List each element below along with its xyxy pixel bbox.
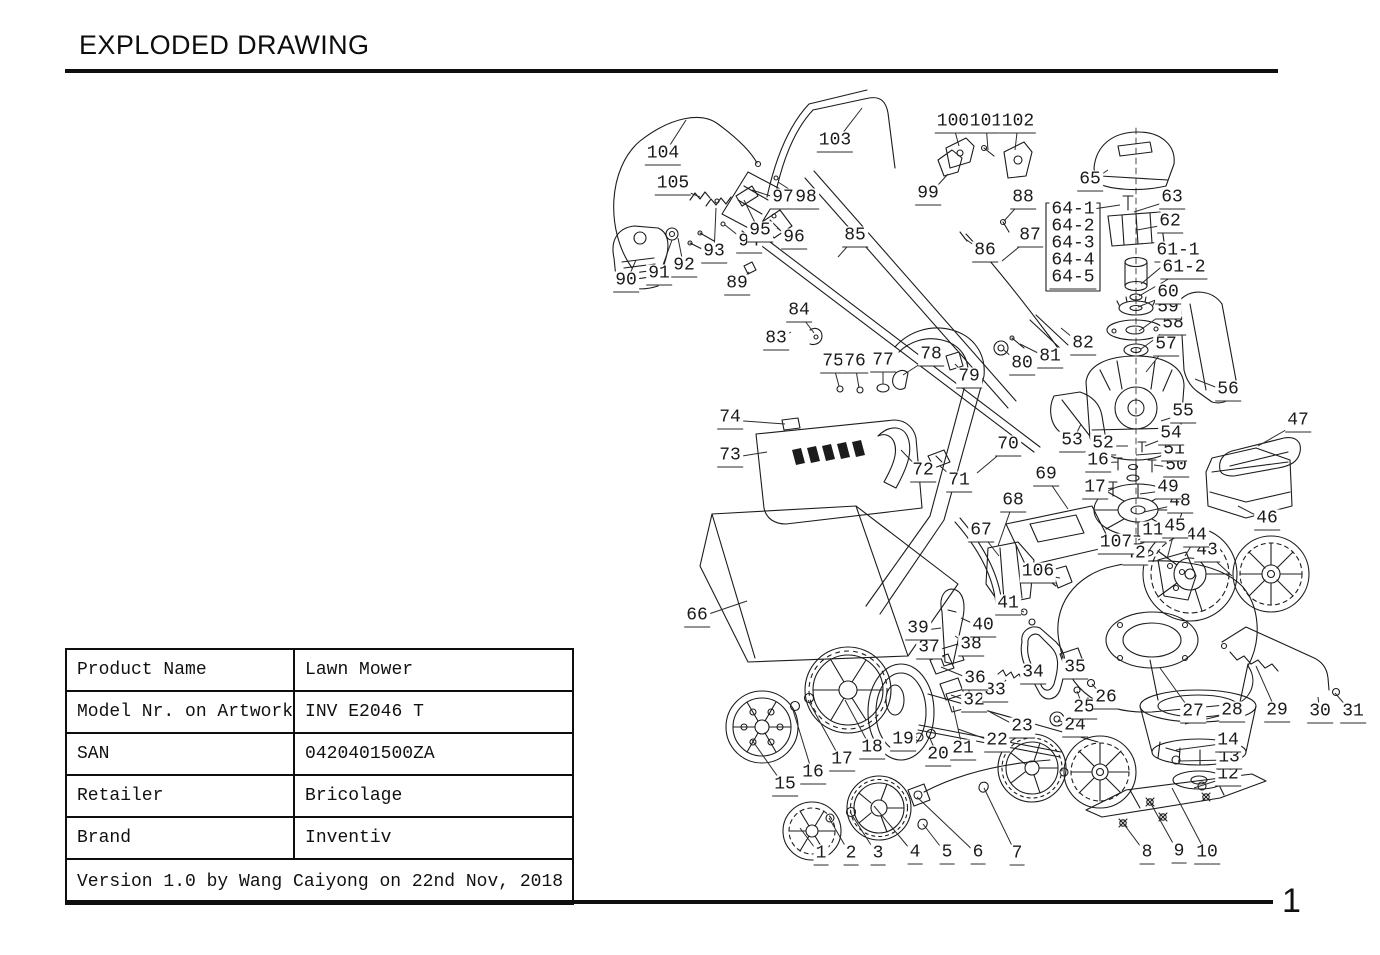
part-label-41: 41 bbox=[995, 595, 1021, 616]
part-label-103: 103 bbox=[817, 132, 853, 153]
part-label-80: 80 bbox=[1009, 355, 1035, 376]
part-label-95: 95 bbox=[747, 222, 773, 243]
part-label-21: 21 bbox=[950, 740, 976, 761]
part-label-2: 2 bbox=[844, 845, 859, 866]
part-label-102: 102 bbox=[1000, 113, 1036, 134]
part-label-74: 74 bbox=[717, 409, 743, 430]
part-label-9: 9 bbox=[1172, 843, 1187, 864]
part-label-17: 17 bbox=[1082, 479, 1108, 500]
part-label-55: 55 bbox=[1170, 403, 1196, 424]
part-label-107: 107 bbox=[1098, 534, 1134, 555]
part-label-5: 5 bbox=[940, 844, 955, 865]
part-label-36: 36 bbox=[962, 670, 988, 691]
part-label-65: 65 bbox=[1077, 171, 1103, 192]
part-label-81: 81 bbox=[1037, 348, 1063, 369]
part-label-20: 20 bbox=[925, 746, 951, 767]
part-label-53: 53 bbox=[1059, 432, 1085, 453]
part-label-66: 66 bbox=[684, 607, 710, 628]
part-label-23: 23 bbox=[1009, 718, 1035, 739]
part-label-99: 99 bbox=[915, 185, 941, 206]
part-label-77: 77 bbox=[870, 352, 896, 373]
part-label-63: 63 bbox=[1159, 189, 1185, 210]
part-label-69: 69 bbox=[1033, 466, 1059, 487]
part-label-98: 98 bbox=[793, 189, 819, 210]
part-label-56: 56 bbox=[1215, 381, 1241, 402]
part-label-39: 39 bbox=[905, 620, 931, 641]
part-label-4: 4 bbox=[908, 844, 923, 865]
part-label-89: 89 bbox=[724, 275, 750, 296]
part-label-73: 73 bbox=[717, 447, 743, 468]
part-labels-layer: 1234567891011121314151617181920212223242… bbox=[0, 0, 1380, 955]
part-label-1: 1 bbox=[814, 845, 829, 866]
part-label-100: 100 bbox=[935, 113, 971, 134]
part-label-85: 85 bbox=[842, 227, 868, 248]
part-label-61-2: 61-2 bbox=[1160, 259, 1207, 280]
part-label-24: 24 bbox=[1062, 717, 1088, 738]
part-label-72: 72 bbox=[910, 462, 936, 483]
part-label-83: 83 bbox=[763, 330, 789, 351]
part-label-68: 68 bbox=[1000, 492, 1026, 513]
part-label-37: 37 bbox=[916, 639, 942, 660]
part-label-78: 78 bbox=[918, 346, 944, 367]
part-label-40: 40 bbox=[970, 617, 996, 638]
part-label-6: 6 bbox=[971, 844, 986, 865]
part-label-93: 93 bbox=[701, 243, 727, 264]
part-label-30: 30 bbox=[1307, 703, 1333, 724]
part-label-45: 45 bbox=[1162, 518, 1188, 539]
part-label-88: 88 bbox=[1010, 189, 1036, 210]
part-label-54: 54 bbox=[1158, 425, 1184, 446]
part-label-104: 104 bbox=[645, 145, 681, 166]
part-label-71: 71 bbox=[946, 472, 972, 493]
part-label-17: 17 bbox=[829, 751, 855, 772]
document-page: EXPLODED DRAWING 1 bbox=[0, 0, 1380, 955]
part-label-8: 8 bbox=[1140, 844, 1155, 865]
part-label-62: 62 bbox=[1157, 213, 1183, 234]
part-label-10: 10 bbox=[1194, 844, 1220, 865]
part-label-70: 70 bbox=[995, 436, 1021, 457]
part-label-92: 92 bbox=[671, 257, 697, 278]
part-label-3: 3 bbox=[871, 845, 886, 866]
part-label-47: 47 bbox=[1285, 412, 1311, 433]
part-label-60: 60 bbox=[1155, 284, 1181, 305]
part-label-105: 105 bbox=[655, 175, 691, 196]
part-label-15: 15 bbox=[772, 776, 798, 797]
part-label-28: 28 bbox=[1219, 702, 1245, 723]
part-label-31: 31 bbox=[1340, 703, 1366, 724]
part-label-91: 91 bbox=[646, 265, 672, 286]
part-label-87: 87 bbox=[1017, 227, 1043, 248]
part-label-22: 22 bbox=[984, 732, 1010, 753]
part-label-7: 7 bbox=[1010, 845, 1025, 866]
part-label-86: 86 bbox=[972, 242, 998, 263]
part-label-46: 46 bbox=[1254, 510, 1280, 531]
part-label-26: 26 bbox=[1093, 689, 1119, 710]
part-label-64-5: 64-5 bbox=[1049, 269, 1096, 290]
part-label-57: 57 bbox=[1153, 336, 1179, 357]
part-label-29: 29 bbox=[1264, 702, 1290, 723]
part-label-16: 16 bbox=[800, 764, 826, 785]
part-label-16: 16 bbox=[1085, 452, 1111, 473]
part-label-90: 90 bbox=[613, 272, 639, 293]
part-label-101: 101 bbox=[968, 113, 1004, 134]
part-label-19: 19 bbox=[890, 731, 916, 752]
part-label-97: 97 bbox=[770, 189, 796, 210]
part-label-49: 49 bbox=[1155, 479, 1181, 500]
part-label-38: 38 bbox=[958, 636, 984, 657]
part-label-18: 18 bbox=[859, 739, 885, 760]
part-label-106: 106 bbox=[1020, 563, 1056, 584]
part-label-82: 82 bbox=[1070, 335, 1096, 356]
part-label-27: 27 bbox=[1180, 703, 1206, 724]
part-label-84: 84 bbox=[786, 302, 812, 323]
part-label-76: 76 bbox=[842, 353, 868, 374]
part-label-34: 34 bbox=[1020, 664, 1046, 685]
part-label-14: 14 bbox=[1215, 732, 1241, 753]
part-label-79: 79 bbox=[956, 368, 982, 389]
part-label-67: 67 bbox=[968, 522, 994, 543]
part-label-35: 35 bbox=[1062, 659, 1088, 680]
part-label-96: 96 bbox=[781, 229, 807, 250]
